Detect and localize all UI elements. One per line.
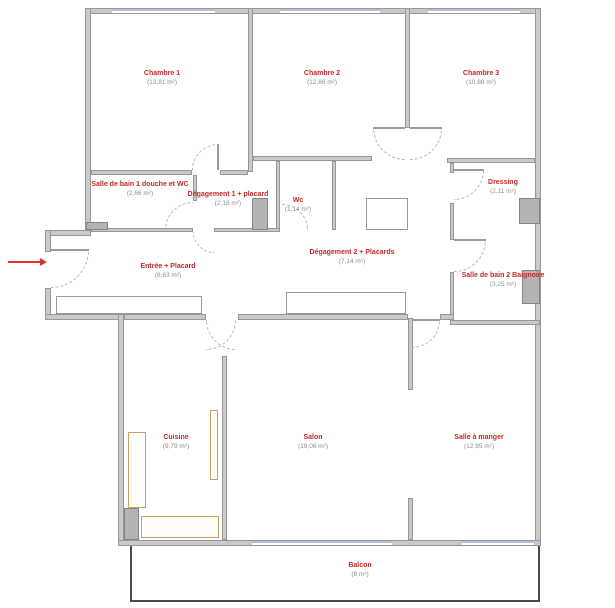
kitchen-counter-right bbox=[210, 410, 218, 480]
door-leaf-salle-a-manger bbox=[412, 319, 440, 321]
door-arc-entrance bbox=[51, 250, 89, 288]
window-chambre-1 bbox=[112, 9, 215, 13]
kitchen-counter-bottom bbox=[141, 516, 219, 538]
door-leaf-sdb2 bbox=[454, 239, 486, 241]
room-name: Chambre 3 bbox=[463, 70, 499, 79]
room-label-degagement-2: Dégagement 2 + Placards (7,14 m²) bbox=[309, 249, 394, 266]
wall-dressing-left-b bbox=[450, 203, 454, 240]
room-label-balcon: Balcon (9 m²) bbox=[348, 562, 371, 579]
room-label-chambre-3: Chambre 3 (10,88 m²) bbox=[463, 70, 499, 87]
wall-chambre2-chambre3 bbox=[405, 8, 410, 128]
room-name: Dégagement 2 + Placards bbox=[309, 249, 394, 258]
room-name: Dégagement 1 + placard bbox=[188, 191, 269, 200]
radiator-entree bbox=[86, 222, 108, 230]
room-name: Salle de bain 1 douche et WC bbox=[91, 181, 188, 190]
room-name: Salle de bain 2 Baignoire bbox=[462, 272, 545, 281]
door-leaf-dressing bbox=[454, 169, 484, 171]
door-leaf-entrance bbox=[51, 249, 89, 251]
placard-near-wc bbox=[366, 198, 408, 230]
room-area: (7,14 m²) bbox=[309, 258, 394, 266]
room-label-dressing: Dressing (2,11 m²) bbox=[488, 179, 518, 196]
room-label-chambre-1: Chambre 1 (13,81 m²) bbox=[144, 70, 180, 87]
room-label-salle-de-bain-2: Salle de bain 2 Baignoire (3,25 m²) bbox=[462, 272, 545, 289]
room-name: Chambre 1 bbox=[144, 70, 180, 79]
wall-sdb2-bottom bbox=[450, 320, 540, 325]
door-leaf-chambre3 bbox=[410, 127, 442, 129]
room-name: Salle à manger bbox=[454, 434, 503, 443]
door-leaf-chambre2 bbox=[373, 127, 405, 129]
balcony-outline bbox=[130, 546, 540, 602]
wall-chambre1-bottom-left bbox=[91, 170, 192, 175]
room-name: Wc bbox=[285, 197, 311, 206]
door-arc-salle-a-manger bbox=[412, 320, 440, 348]
room-label-wc: Wc (1,14 m²) bbox=[285, 197, 311, 214]
room-label-salon: Salon (19,06 m²) bbox=[298, 434, 328, 451]
entrance-arrow bbox=[8, 261, 40, 263]
room-area: (2,16 m²) bbox=[188, 200, 269, 208]
placard-degagement2 bbox=[286, 292, 406, 314]
room-area: (12,95 m²) bbox=[454, 443, 503, 451]
door-arc-chambre2 bbox=[373, 128, 405, 160]
room-name: Balcon bbox=[348, 562, 371, 571]
room-area: (3,25 m²) bbox=[462, 281, 545, 289]
room-area: (2,11 m²) bbox=[488, 188, 518, 196]
room-area: (1,14 m²) bbox=[285, 206, 311, 214]
door-leaf-chambre1 bbox=[217, 144, 219, 170]
room-area: (2,66 m²) bbox=[91, 190, 188, 198]
room-label-salle-a-manger: Salle à manger (12,95 m²) bbox=[454, 434, 503, 451]
wall-corridor-top-b bbox=[214, 228, 280, 232]
room-area: (19,06 m²) bbox=[298, 443, 328, 451]
room-name: Dressing bbox=[488, 179, 518, 188]
wall-chambre3-bottom bbox=[447, 158, 535, 163]
room-name: Salon bbox=[298, 434, 328, 443]
kitchen-counter-left bbox=[128, 432, 146, 508]
room-area: (8,63 m²) bbox=[140, 272, 195, 280]
wall-chambre2-bottom bbox=[253, 156, 372, 161]
radiator-dressing bbox=[519, 198, 540, 224]
room-area: (13,81 m²) bbox=[144, 79, 180, 87]
wall-chambre1-chambre2 bbox=[248, 8, 253, 172]
room-area: (9,79 m²) bbox=[163, 443, 189, 451]
room-label-salle-de-bain-1: Salle de bain 1 douche et WC (2,66 m²) bbox=[91, 181, 188, 198]
window-chambre-2 bbox=[280, 9, 380, 13]
room-area: (10,88 m²) bbox=[463, 79, 499, 87]
wall-salon-sam-lower bbox=[408, 498, 413, 540]
room-label-chambre-2: Chambre 2 (12,86 m²) bbox=[304, 70, 340, 87]
room-label-degagement-1: Dégagement 1 + placard (2,16 m²) bbox=[188, 191, 269, 208]
wall-chambre1-bottom-right bbox=[220, 170, 248, 175]
door-arc-chambre1 bbox=[192, 144, 218, 170]
radiator-cuisine bbox=[124, 508, 139, 540]
window-salle-a-manger bbox=[462, 541, 534, 545]
door-arc-chambre3 bbox=[410, 128, 442, 160]
wall-wc-left bbox=[276, 161, 280, 230]
door-arc-dressing bbox=[454, 170, 484, 200]
room-label-entree: Entrée + Placard (8,63 m²) bbox=[140, 263, 195, 280]
entrance-bump-wall-top bbox=[45, 230, 91, 236]
placard-entree bbox=[56, 296, 202, 314]
floor-plan: Chambre 1 (13,81 m²) Chambre 2 (12,86 m²… bbox=[0, 0, 615, 608]
room-name: Chambre 2 bbox=[304, 70, 340, 79]
door-arc-sdb2 bbox=[454, 240, 486, 272]
room-name: Entrée + Placard bbox=[140, 263, 195, 272]
wall-corridor-bottom-a bbox=[124, 314, 206, 320]
window-salon bbox=[252, 541, 392, 545]
room-area: (12,86 m²) bbox=[304, 79, 340, 87]
room-label-cuisine: Cuisine (9,79 m²) bbox=[163, 434, 189, 451]
door-arc-degagement1 bbox=[193, 232, 214, 253]
room-area: (9 m²) bbox=[348, 571, 371, 579]
entrance-arrow-head bbox=[40, 258, 47, 266]
wall-cuisine-salon bbox=[222, 356, 227, 540]
wall-wc-right bbox=[332, 161, 336, 230]
room-name: Cuisine bbox=[163, 434, 189, 443]
exterior-wall-left-upper bbox=[85, 8, 91, 236]
window-chambre-3 bbox=[428, 9, 520, 13]
wall-corridor-bottom-b bbox=[238, 314, 408, 320]
entrance-bump-wall-bottom bbox=[45, 314, 125, 320]
wall-corridor-bottom-c bbox=[440, 314, 454, 320]
